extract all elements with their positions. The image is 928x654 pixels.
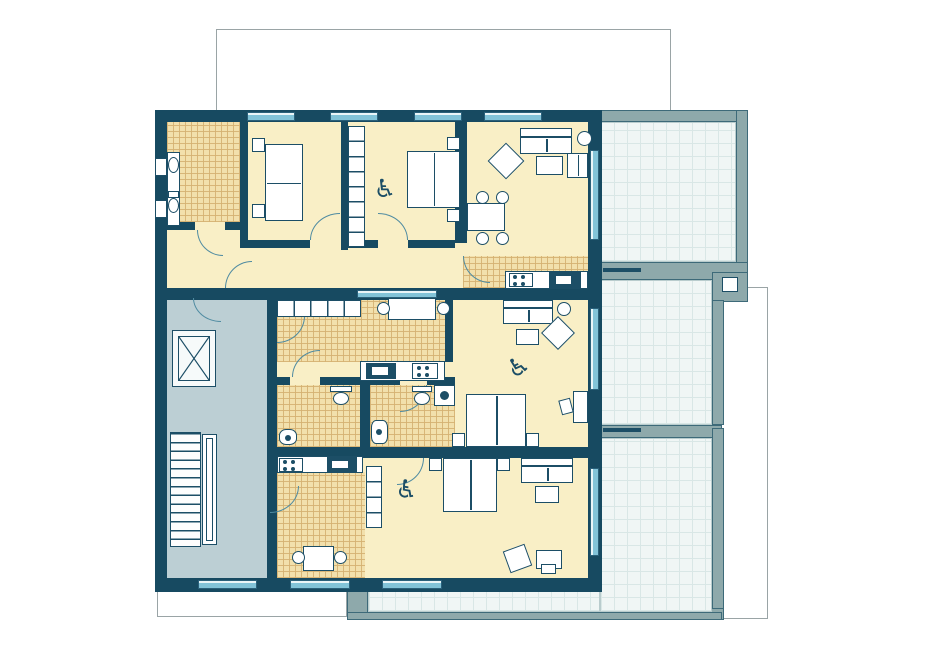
kitchen1-burner-3: [513, 282, 517, 286]
living1-sofa-seat: [520, 137, 572, 154]
wc2-washer-drum: [440, 391, 449, 400]
apt3-desk-chair: [541, 564, 556, 574]
bathroom1-sink: [168, 157, 179, 173]
balcony2-railing-line: [603, 428, 641, 432]
balcony2-step-post: [722, 277, 738, 292]
elevator: [172, 330, 216, 387]
bedroom1-nightstand-1: [252, 138, 265, 152]
apt3-double-bed: [443, 458, 497, 512]
kitchen2-burner-3: [417, 373, 421, 377]
kitchen2-table: [388, 298, 436, 320]
kitchen3-chair-1: [292, 551, 305, 564]
bedroom1-double-bed: [265, 144, 303, 221]
bedroom2-double-bed: [407, 151, 460, 208]
kitchen3-table: [303, 546, 334, 571]
kitchen2-sink-basin: [371, 366, 389, 376]
bedroom2-nightstand-1: [447, 137, 460, 150]
apt3-double-bed-divider: [470, 460, 472, 510]
balcony-door-2: [590, 308, 599, 390]
kitchen3-chair-2: [334, 551, 347, 564]
bathroom1-toilet-bowl: [168, 198, 179, 213]
balcony3-floor: [600, 438, 712, 612]
apt2-nightstand-1: [452, 433, 465, 447]
wardrobe-apt3: [366, 466, 382, 528]
wall-bed2-bottom-b: [408, 240, 455, 248]
wall-stairwell-right-a: [267, 300, 277, 315]
floorplan-canvas: ♿♿♿: [0, 0, 928, 654]
living1-sofa-back: [520, 128, 572, 137]
wall-bath1-right: [240, 122, 248, 243]
wc2-toilet-bowl: [414, 392, 430, 405]
wall-apt2-bath-top-a: [277, 377, 290, 385]
living1-armchair-divider: [578, 155, 580, 176]
living1-coffee-table: [536, 156, 563, 175]
living2-side-table: [557, 302, 571, 316]
wardrobe-bedroom1: [348, 126, 365, 247]
apt2-desk: [573, 391, 588, 423]
kitchen1-burner-2: [521, 275, 525, 279]
roof-outline-top: [216, 29, 671, 112]
kitchen3-burner-2: [291, 460, 295, 464]
window-top-1: [247, 112, 295, 121]
living1-sofa-seat-divider: [546, 139, 548, 152]
wall-stairwell-right-c: [267, 513, 277, 578]
apt3-sofa-seat: [521, 466, 573, 483]
kitchen3-burner-1: [283, 460, 287, 464]
apt3-sofa-back: [521, 458, 573, 466]
apt2-nightstand-2: [526, 433, 539, 447]
kitchen2-burner-1: [417, 366, 421, 370]
elevator-x-mark: [178, 336, 210, 381]
balcony1-floor: [600, 122, 736, 262]
apt2-double-bed: [466, 394, 526, 447]
window-top-3: [414, 112, 462, 121]
kitchen2-chair-1: [377, 302, 390, 315]
kitchen1-burner-4: [521, 282, 525, 286]
kitchen1-burner-1: [513, 275, 517, 279]
kitchen3-burner-3: [283, 467, 287, 471]
kitchen3-sink-basin: [331, 460, 349, 469]
balcony2-wall-right: [712, 300, 724, 425]
apt3-nightstand-2: [497, 458, 510, 471]
living1-side-table: [577, 131, 592, 146]
wall-bed1-bottom: [240, 240, 310, 248]
apt3-coffee-table: [535, 486, 559, 503]
shaft-niche-2: [155, 200, 167, 218]
balcony2-floor: [600, 280, 712, 425]
living2-sofa-back: [503, 300, 553, 308]
shaft-niche-1: [155, 158, 167, 176]
dining1-chair-1: [476, 191, 489, 204]
balcony3-wall-right: [712, 428, 724, 620]
balcony1-wall-right: [736, 110, 748, 274]
wall-bed1-bed2: [341, 122, 348, 250]
window-top-4: [484, 112, 542, 121]
terrace-wall-bottom: [347, 612, 722, 620]
window-bottom-2: [290, 580, 350, 589]
wall-bath1-bottom-b: [225, 222, 240, 230]
wc2-basin-drain: [376, 429, 382, 435]
kitchen2-burner-4: [425, 373, 429, 377]
bathroom2-sink-drain: [285, 435, 291, 441]
apt3-nightstand-1: [429, 458, 442, 471]
kitchen1-sink-basin: [555, 275, 572, 285]
balcony-door-3: [590, 468, 599, 556]
bedroom1-nightstand-2: [252, 204, 265, 218]
stair-handrail-inner: [206, 438, 213, 541]
apt2-double-bed-divider: [496, 396, 498, 445]
balcony-door-1: [590, 150, 599, 240]
person-with-walker-icon: ♿: [371, 172, 399, 204]
staircase: [170, 432, 201, 547]
window-bottom-3: [382, 580, 442, 589]
kitchen3-burner-4: [291, 467, 295, 471]
wheelchair-user-icon-apt3: ♿: [389, 470, 424, 509]
kitchen2-chair-2: [437, 302, 450, 315]
bathroom1-toilet-tank: [168, 191, 179, 198]
bedroom2-double-bed-divider: [434, 153, 436, 206]
wall-apt2-apt3-b: [423, 447, 602, 458]
kitchen2-cabinet-row: [277, 300, 361, 317]
apt3-sofa-seat-divider: [547, 468, 549, 481]
wall-stairwell-right-b: [267, 345, 277, 483]
living2-coffee-table: [516, 329, 539, 345]
dining1-chair-4: [496, 232, 509, 245]
living2-sofa-seat: [503, 308, 553, 324]
living2-sofa-seat-divider: [528, 310, 530, 322]
bedroom1-double-bed-divider: [267, 183, 301, 185]
window-top-2: [330, 112, 378, 121]
bathroom2-toilet-bowl: [333, 392, 349, 405]
dining1-chair-2: [496, 191, 509, 204]
balcony1-wall-top: [600, 110, 748, 122]
bedroom2-nightstand-2: [447, 209, 460, 222]
window-bottom-1: [198, 580, 257, 589]
terrace-floor: [368, 590, 600, 612]
balcony1-railing-line: [603, 268, 641, 272]
wall-bath-wc-divider: [360, 385, 370, 447]
living1-armchair: [567, 153, 588, 178]
dining1-chair-3: [476, 232, 489, 245]
kitchen2-burner-2: [425, 366, 429, 370]
dining1-table: [467, 203, 505, 231]
window-interior: [357, 290, 437, 298]
